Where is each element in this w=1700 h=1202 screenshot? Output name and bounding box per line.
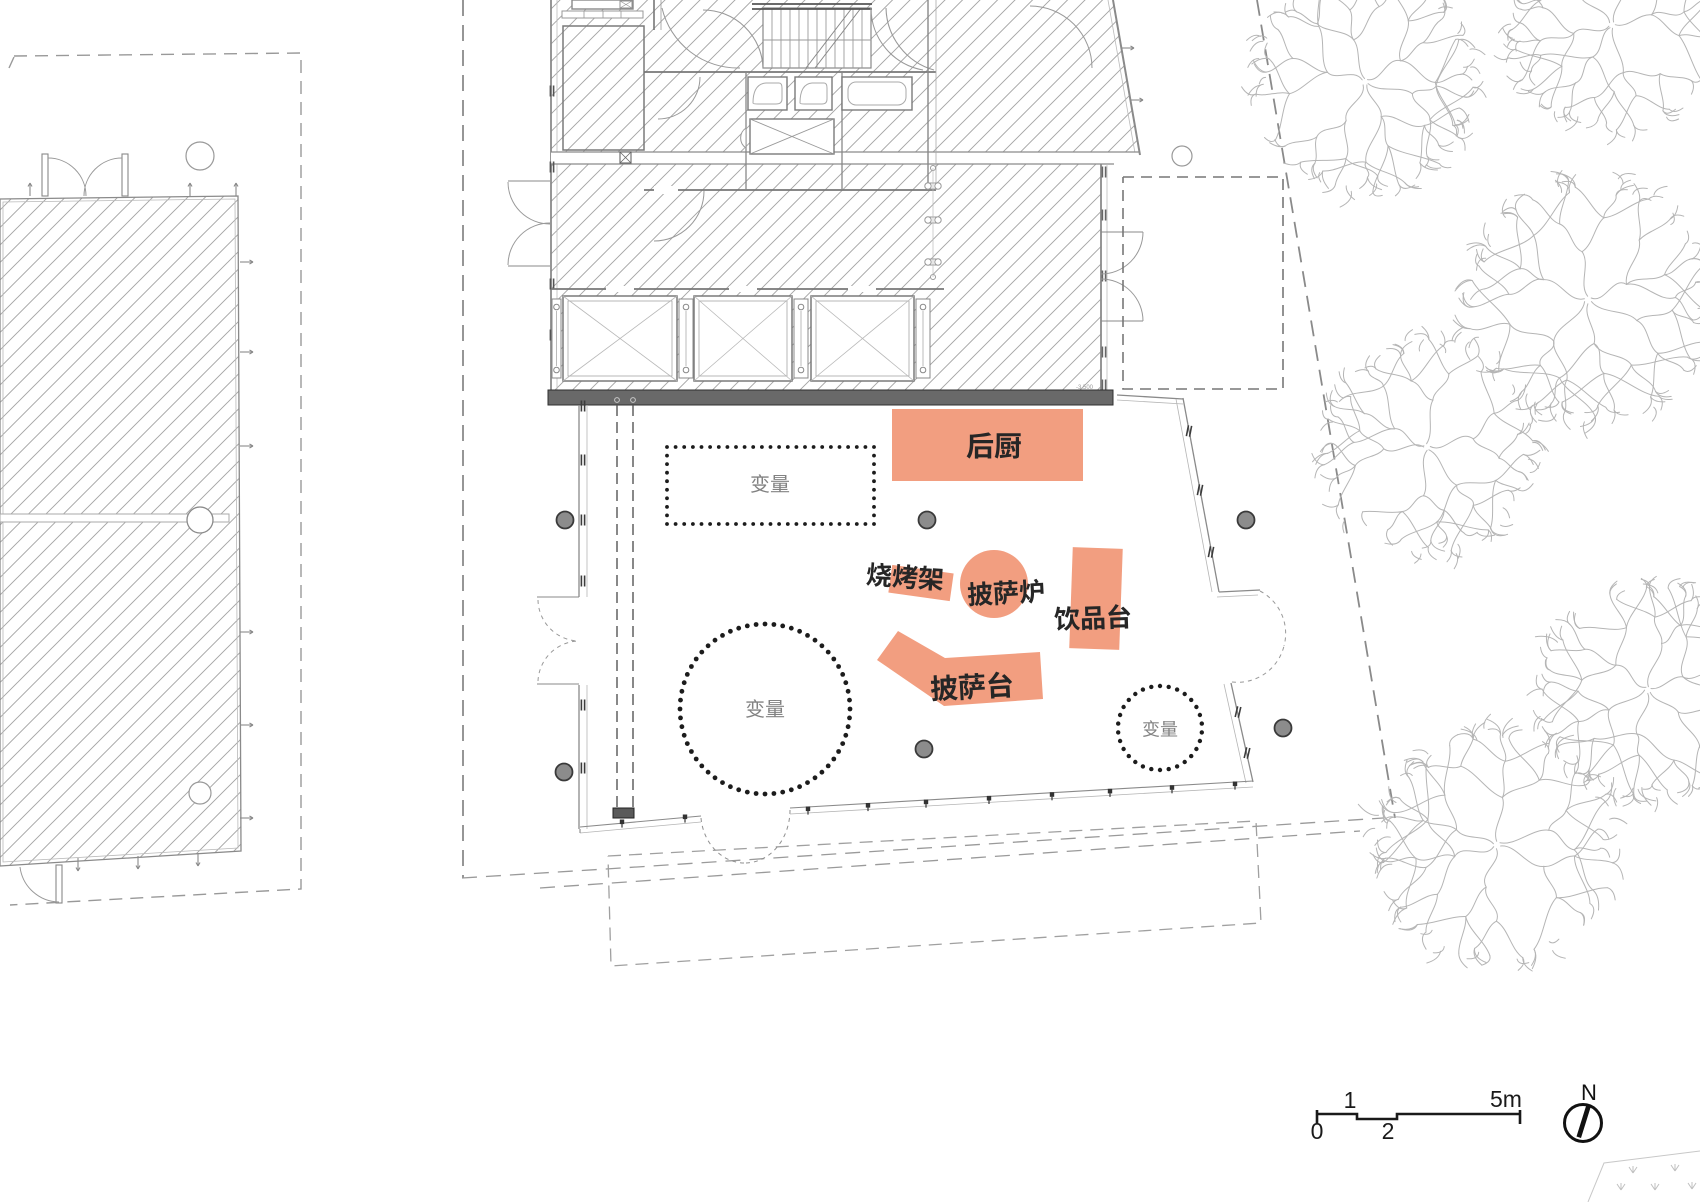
svg-text:0: 0	[1311, 1118, 1324, 1144]
svg-text:N: N	[1581, 1080, 1597, 1105]
svg-text:2: 2	[1382, 1118, 1395, 1144]
svg-text:1: 1	[1344, 1087, 1357, 1113]
svg-text:5m: 5m	[1490, 1086, 1522, 1112]
